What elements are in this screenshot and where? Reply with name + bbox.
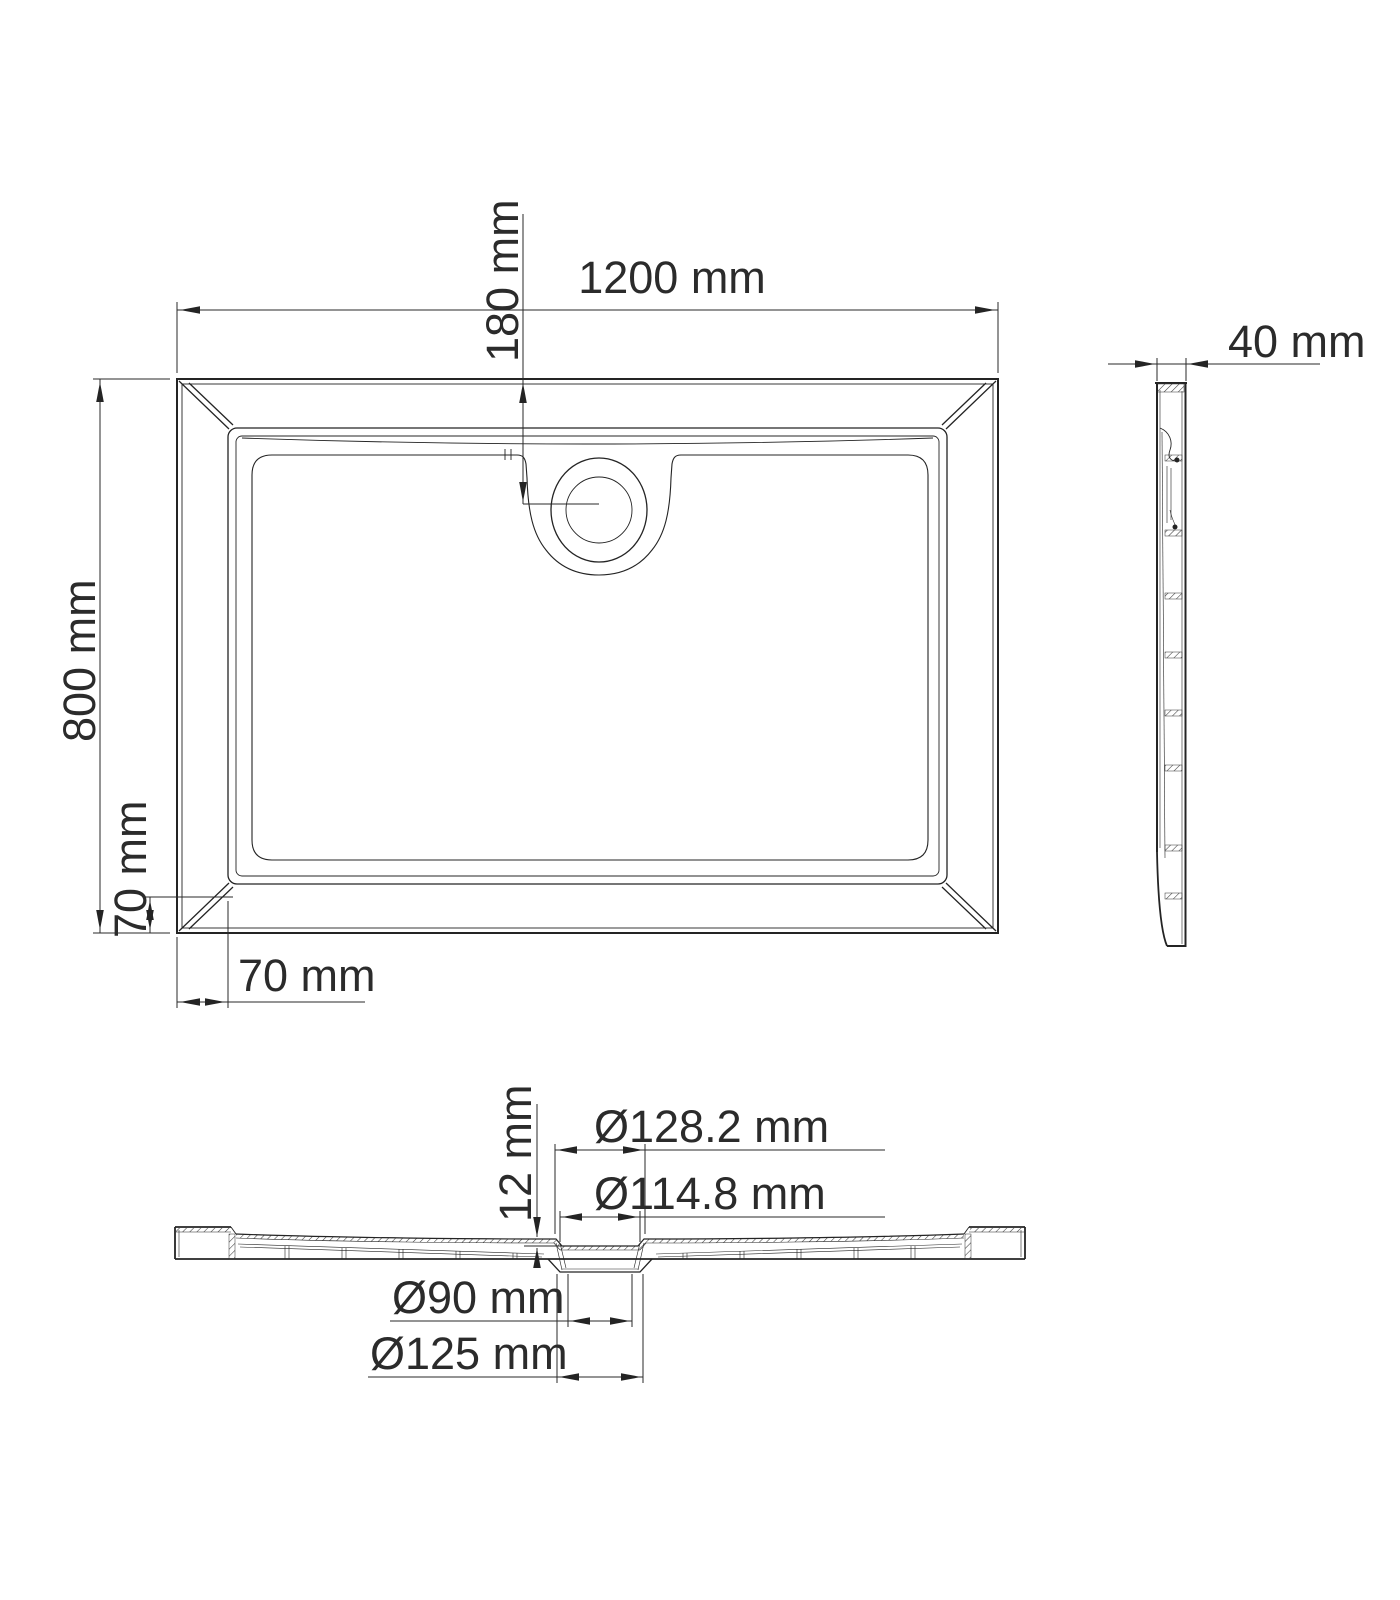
side-top-cap (1157, 384, 1184, 392)
top-view: 1200 mm 800 mm 180 mm 70 mm (54, 199, 998, 1008)
left-lip-hatch (176, 1228, 230, 1232)
dim-label-thickness: 40 mm (1228, 316, 1366, 367)
dim-label-width: 1200 mm (578, 252, 766, 303)
section-view: 12 mm Ø128.2 mm Ø114.8 mm Ø90 mm (175, 1084, 1025, 1383)
tray-outer-edge-inner-line (182, 384, 993, 928)
rim-outer-line (228, 428, 947, 884)
drain-outer-circle (551, 458, 647, 562)
rim-bow-line (242, 438, 933, 444)
dim-corner-horizontal: 70 mm (177, 901, 376, 1008)
floor-outline (252, 455, 928, 860)
side-profile (1155, 383, 1187, 947)
dim-label-corner-horizontal: 70 mm (238, 950, 376, 1001)
dim-label-dia-bottom-inner: Ø90 mm (392, 1272, 565, 1323)
shower-tray-drawing: 1200 mm 800 mm 180 mm 70 mm (0, 0, 1400, 1600)
dim-label-drain-offset: 180 mm (477, 199, 528, 362)
side-view: 40 mm (1108, 316, 1366, 947)
dim-label-height: 800 mm (54, 579, 105, 742)
dim-label-dia-bottom-outer: Ø125 mm (370, 1328, 568, 1379)
dim-label-corner-vertical: 70 mm (105, 800, 156, 938)
tray-outer-edge (177, 379, 998, 933)
dim-label-dia-outer-top: Ø128.2 mm (594, 1101, 829, 1152)
dim-dia-bottom-inner: Ø90 mm (390, 1272, 632, 1327)
dim-label-dia-inner-top: Ø114.8 mm (594, 1168, 826, 1219)
dim-dia-inner-top: Ø114.8 mm (560, 1168, 885, 1242)
rim-inner-line (236, 436, 939, 876)
right-lip-hatch (970, 1228, 1024, 1232)
dim-corner-vertical: 70 mm (105, 800, 233, 938)
section-profile (175, 1227, 1025, 1272)
corner-bevels (179, 381, 996, 931)
drain-inner-circle (566, 477, 632, 543)
dim-label-recess-depth: 12 mm (490, 1084, 541, 1222)
dim-thickness: 40 mm (1108, 316, 1366, 381)
side-rim-detail (1160, 428, 1180, 530)
dim-width: 1200 mm (177, 252, 998, 373)
dim-drain-offset: 180 mm (477, 199, 599, 504)
technical-drawing-page: 1200 mm 800 mm 180 mm 70 mm (0, 0, 1400, 1600)
